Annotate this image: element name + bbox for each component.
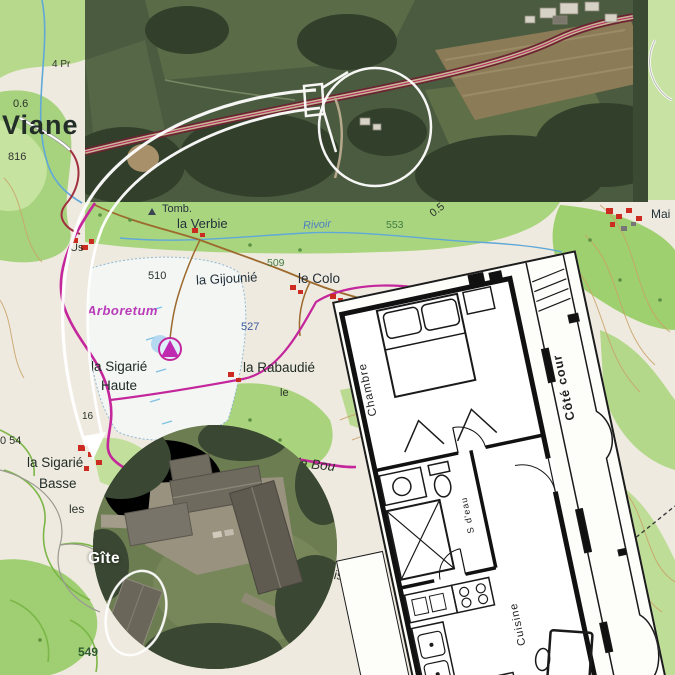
map-label-viane: Viane: [2, 112, 79, 139]
map-label-arboretum: Arboretum: [87, 304, 158, 317]
map-label-549: 549: [78, 646, 98, 658]
map-label-sigarie-haute-1: la Sigarié: [91, 360, 147, 374]
map-label-le: le: [280, 388, 289, 399]
map-label-le-colo: le Colo: [298, 272, 340, 286]
map-label-mai: Mai: [651, 208, 670, 220]
map-label-4pr: 4 Pr: [52, 60, 70, 70]
aerial-tan-patch: [127, 144, 159, 172]
map-label-sigarie-basse-1: la Sigarié: [27, 456, 83, 470]
map-label-16: 16: [82, 412, 93, 422]
composite-location-graphic: 4 Pr 0.6 Viane 816 Us Tomb. la Verbie Ri…: [0, 0, 675, 675]
map-label-0-54: 0 54: [0, 436, 21, 447]
map-label-rivoir: Rivoir: [303, 219, 332, 232]
map-label-tomb: Tomb.: [162, 204, 192, 215]
map-label-sigarie-haute-2: Haute: [101, 379, 137, 393]
map-label-us: Us: [70, 243, 83, 254]
aerial-photo-strip: [85, 0, 648, 202]
map-label-553: 553: [386, 220, 404, 231]
gite-label: Gîte: [88, 550, 120, 568]
aerial-inset-circle: [93, 425, 337, 669]
map-label-sigarie-basse-2: Basse: [39, 477, 77, 491]
map-label-527: 527: [241, 322, 259, 333]
map-label-la-verbie: la Verbie: [177, 217, 228, 230]
map-label-509: 509: [267, 258, 285, 269]
map-label-816: 816: [8, 152, 26, 163]
map-label-les: les: [69, 503, 84, 515]
map-label-510: 510: [148, 271, 166, 282]
map-label-gijounie: la Gijounié: [196, 270, 258, 286]
map-label-0-6: 0.6: [13, 99, 28, 110]
map-label-rabaudie: la Rabaudié: [243, 361, 315, 375]
